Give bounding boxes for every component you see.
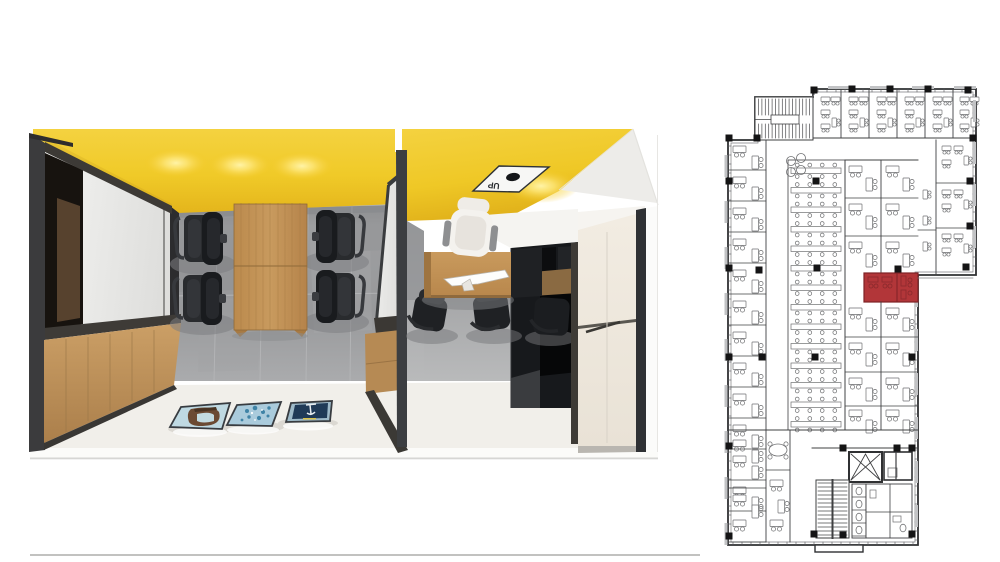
svg-text:UP: UP — [487, 180, 500, 191]
